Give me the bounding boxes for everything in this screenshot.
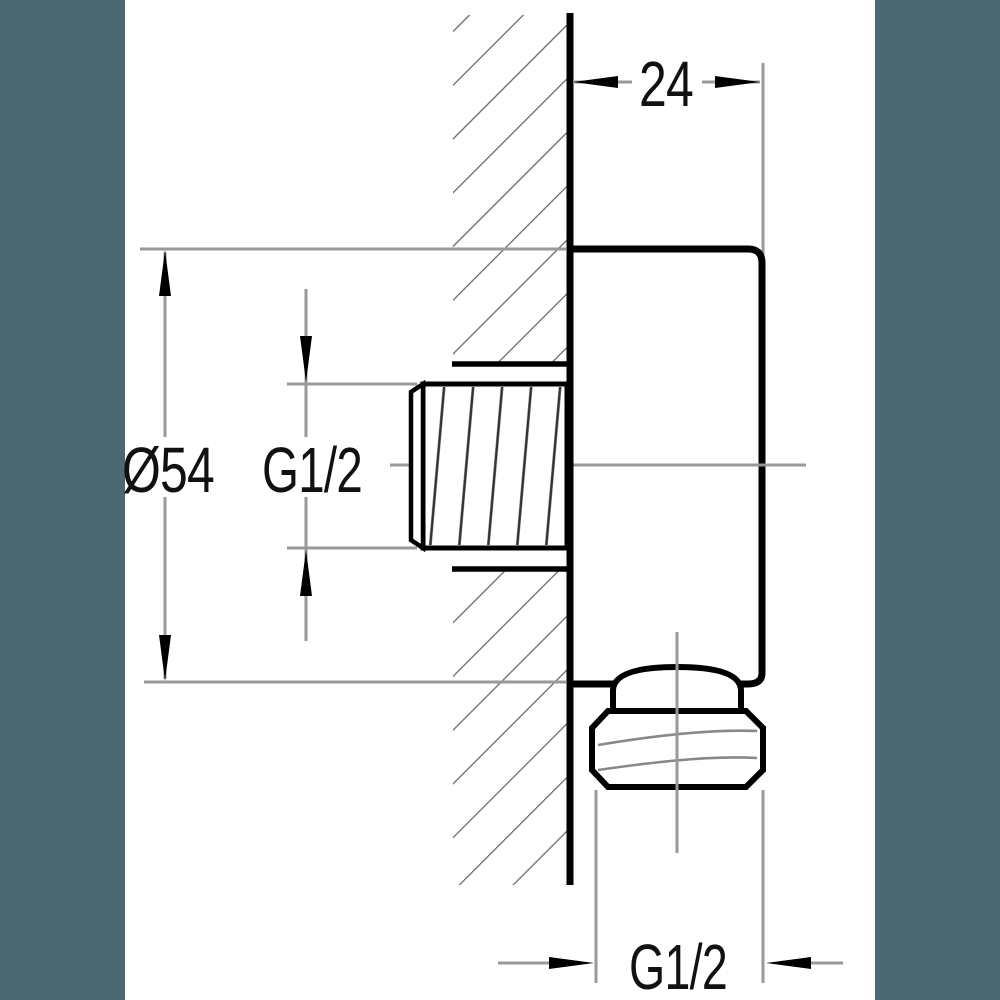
dim-mount-depth-label: 24 — [639, 48, 693, 120]
side-panel-right — [875, 0, 1000, 1000]
technical-drawing-canvas: 24 Ø54 G1/2 G1/2 — [0, 0, 1000, 1000]
thread-end-chamfer — [411, 384, 423, 548]
thread-hatch — [426, 387, 564, 545]
dim-plate-diameter-label: Ø54 — [122, 434, 214, 506]
dim-inlet-thread-label: G1/2 — [262, 434, 362, 506]
inlet-thread-spigot — [411, 384, 567, 548]
dim-outlet-thread-label: G1/2 — [629, 931, 727, 1000]
screenshot-root: 24 Ø54 G1/2 G1/2 — [0, 0, 1000, 1000]
side-panel-left — [0, 0, 125, 1000]
